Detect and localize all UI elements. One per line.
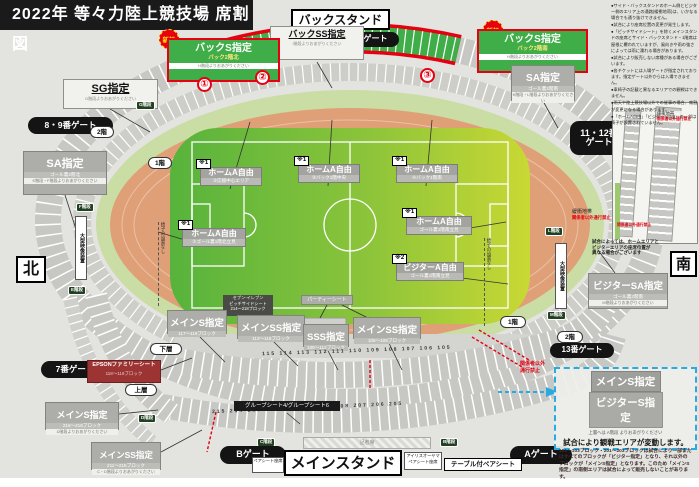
note-item: ●「ホームA自由」「ビジターA自由」の一部は椅子が設置されていません。 xyxy=(611,114,698,126)
upper-tier-label: 上層 xyxy=(125,384,157,396)
visitor-a-free-title: ビジターA自由 xyxy=(397,263,463,273)
gate-13: 13番ゲート xyxy=(550,343,614,358)
press-seats-label: 記者席 xyxy=(303,437,431,449)
main-ss-east-title: メインSS指定 xyxy=(357,325,417,336)
stairs-l-badge: L階段 xyxy=(545,227,563,236)
visitor-a-free-sub: ゴール裏1階南立見 xyxy=(397,273,463,280)
main-ss-east-label: メインSS指定 105〜108ブロック xyxy=(353,317,421,339)
visitor-sa-label: ビジターSA指定 ゴール裏2階南 M階段よりおあがりください xyxy=(588,273,668,309)
stairs-e-badge: E階段 xyxy=(68,286,86,295)
party-seat-label: パーティーシート xyxy=(301,295,353,305)
lower-tier-label: 下層 xyxy=(150,343,182,355)
variable-area-info-box: メインS指定 ビジターS指定 上層へは A階段 よりおあがりください 試合により… xyxy=(554,367,697,450)
mark-note1: ※1 xyxy=(196,159,211,169)
stairs-m-badge: M階段 xyxy=(547,311,566,320)
mark-note1: ※1 xyxy=(402,208,417,218)
compass-south: 南 xyxy=(670,251,697,277)
no-chairs-left-note: 椅子の設置なし xyxy=(158,222,166,306)
home-a-free-4-sub: ④バック1階南 xyxy=(397,175,457,182)
visitor-sa-stairs: M階段よりおあがりください xyxy=(589,300,667,306)
sg-title: SG指定 xyxy=(64,82,157,96)
family-seat-title: EPSONファミリーシート xyxy=(88,361,160,371)
inset-buffer-warning-2: 関係者以外通行禁止 xyxy=(617,223,677,228)
mark-note1: ※1 xyxy=(294,156,309,166)
back-s-north-sub: バック2階北 xyxy=(169,55,278,62)
mark-note1: ※1 xyxy=(178,220,193,230)
main-ss-upper-stairs: C・D階段よりおあがりください xyxy=(92,469,160,475)
zone-number-2: ② xyxy=(255,70,270,85)
variable-stairs-note: 上層へは A階段 よりおあがりください xyxy=(559,430,692,436)
stairs-f-badge: F階段 xyxy=(76,203,94,212)
mark-note2: ※2 xyxy=(392,254,407,264)
sa-south-label: SA指定 ゴール裏2階南 K階段・L階段よりおあがりください xyxy=(511,65,575,101)
note-item: ●各チケットには入場ゲートが指定されております。指定ゲート以外からは入場できませ… xyxy=(611,68,698,86)
page-title: 2022年 等々力陸上競技場 席割図 xyxy=(0,0,253,30)
home-a-free-2-label: ※1 ホームA自由 ②応援中心エリア xyxy=(200,167,262,186)
home-a-free-3-title: ホームA自由 xyxy=(299,165,359,175)
home-a-free-2-title: ホームA自由 xyxy=(201,168,261,178)
floor-1-left: 1階 xyxy=(148,157,172,169)
sa-north-label: SA指定 ゴール裏2階北 E階段・F階段よりおあがりください xyxy=(23,151,107,195)
family-seat-sub: 118〜119ブロック xyxy=(88,371,160,377)
home-a-free-4-title: ホームA自由 xyxy=(397,165,457,175)
variable-body-text: 101〜103ブロック・201〜203ブロックは試合により一部またはすべてのブロ… xyxy=(559,449,692,481)
main-s-upper-stairs: D階段よりおあがりください xyxy=(46,429,118,435)
variable-headline: 試合により観戦エリアが変動します。 xyxy=(559,437,692,448)
big-screen-right-label: 大型映像装置 xyxy=(555,243,567,309)
zone-number-1: ① xyxy=(197,77,212,92)
main-stand-title: メインスタンド xyxy=(284,450,402,476)
group-seat-label: グループシート4/グループシート6 xyxy=(234,401,340,411)
home-a-free-south-sub: ゴール裏1階南立見 xyxy=(407,227,471,234)
pitchside-line3: 214〜218ブロック xyxy=(223,306,273,312)
note-item: ●雨天や陸上競技場以外での催事の場合、席割が変更になる場合があります。 xyxy=(611,100,698,112)
stairs-d-badge: D階段 xyxy=(138,414,156,423)
stairs-b-badge: B階段 xyxy=(440,438,458,447)
pair-seat-label: ペアシート座席 xyxy=(252,457,284,473)
main-ss-west-label: メインSS指定 113〜116ブロック xyxy=(237,315,305,339)
family-seat-label: EPSONファミリーシート 118〜119ブロック xyxy=(87,360,161,383)
note-item: ●「ピッチサイドシート」を除くメインスタンドの座席とサイド・バックスタンド・1階… xyxy=(611,29,698,53)
home-a-free-1-label: ※1 ホームA自由 ①ゴール裏1階北立見 xyxy=(182,228,246,247)
floor-2-left: 2階 xyxy=(90,126,114,138)
back-ss-label: バックSS指定 I階段よりおあがりください xyxy=(270,26,364,60)
no-chairs-right-note: 椅子の設置なし xyxy=(484,238,492,326)
home-a-free-4-label: ※1 ホームA自由 ④バック1階南 xyxy=(396,164,458,183)
main-s-label: メインS指定 117〜119ブロック xyxy=(167,310,227,334)
back-ss-title: バックSS指定 xyxy=(271,29,363,41)
note-item: ●試合により座席位置の変更が発生します。 xyxy=(611,22,698,28)
note-item: ●車椅子の記載と異なるエリアでの観戦はできません。 xyxy=(611,87,698,99)
main-ss-upper-label: メインSS指定 211〜215ブロック C・D階段よりおあがりください xyxy=(91,442,161,470)
sa-south-stairs: K階段・L階段よりおあがりください xyxy=(512,92,574,103)
sss-title: SSS指定 xyxy=(307,332,345,343)
back-s-south-sub: バック2階南 xyxy=(479,46,586,53)
back-ss-stairs: I階段よりおあがりください xyxy=(271,41,363,47)
back-s-south-stairs: H階段よりおあがりください xyxy=(479,54,586,60)
main-ss-upper-title: メインSS指定 xyxy=(99,450,153,460)
inset-note: 試合によっては、ホームエリアと ビジターエリアの座席位置が 異なる場合がございま… xyxy=(592,239,674,256)
table-pair-seat-label: テーブル付ペアシート xyxy=(444,458,522,471)
sa-north-title: SA指定 xyxy=(46,158,83,170)
sss-label: SSS指定 109〜112ブロック xyxy=(303,324,349,347)
home-a-free-1-sub: ①ゴール裏1階北立見 xyxy=(183,239,245,246)
main-s-title: メインS指定 xyxy=(170,318,224,329)
home-a-free-3-label: ※1 ホームA自由 ③バック1階中央 xyxy=(298,164,360,183)
visitor-sa-title: ビジターSA指定 xyxy=(593,281,663,292)
home-a-free-1-title: ホームA自由 xyxy=(183,229,245,239)
note-item: ●試合により販売しない席種がある場合がございます。 xyxy=(611,55,698,67)
inset-lawn-strip xyxy=(615,183,620,239)
stadium-seat-map: 2022年 等々力陸上競技場 席割図 バックスタンド 10番ゲート バックSS指… xyxy=(0,0,699,487)
home-a-free-south-title: ホームA自由 xyxy=(407,217,471,227)
sa-south-title: SA指定 xyxy=(526,73,560,84)
inset-blocks-inner xyxy=(617,109,642,238)
home-a-free-3-sub: ③バック1階中央 xyxy=(299,175,359,182)
floor-2-right: 2階 xyxy=(557,331,583,343)
main-ss-east-sub: 105〜108ブロック xyxy=(354,338,420,344)
main-ss-west-sub: 113〜116ブロック xyxy=(238,336,304,342)
big-screen-left-label: 大型映像装置 xyxy=(75,216,87,280)
mark-note1: ※1 xyxy=(392,156,407,166)
main-s-sub: 117〜119ブロック xyxy=(168,331,226,337)
visitor-a-free-label: ※2 ビジターA自由 ゴール裏1階南立見 xyxy=(396,262,464,281)
variable-main-s-header: メインS指定 xyxy=(591,371,661,392)
pitchside-seat-label: セブン-イレブン ピッチサイドシート 214〜218ブロック xyxy=(223,295,273,316)
main-s-upper-title: メインS指定 xyxy=(56,410,107,420)
zone-number-3: ③ xyxy=(420,68,435,83)
main-s-upper-label: メインS指定 216〜218ブロック D階段よりおあがりください xyxy=(45,402,119,430)
home-a-free-2-sub: ②応援中心エリア xyxy=(201,178,261,185)
back-s-north-title: バックS指定 xyxy=(169,42,278,55)
compass-north: 北 xyxy=(16,256,46,283)
floor-1-right: 1階 xyxy=(500,316,526,328)
main-ss-west-title: メインSS指定 xyxy=(241,323,301,334)
stairs-g-badge: G階段 xyxy=(136,101,155,110)
iris-pair-seat-label: アイリスオーヤマ ペアシート座席 xyxy=(404,452,442,470)
variable-visitor-s-header: ビジターS指定 xyxy=(589,392,663,428)
home-a-free-south-label: ※1 ホームA自由 ゴール裏1階南立見 xyxy=(406,216,472,235)
notes-list: ●サイド・バックスタンドのホーム側とビジター側のエリア上の通路(緩衝地帯)は、い… xyxy=(611,3,698,127)
back-s-south-title: バックS指定 xyxy=(479,33,586,46)
sa-north-stairs: E階段・F階段よりおあがりください xyxy=(24,178,106,184)
note-item: ●サイド・バックスタンドのホーム側とビジター側のエリア上の通路(緩衝地帯)は、い… xyxy=(611,3,698,21)
back-s-north-stairs: H階段よりおあがりください xyxy=(169,63,278,69)
